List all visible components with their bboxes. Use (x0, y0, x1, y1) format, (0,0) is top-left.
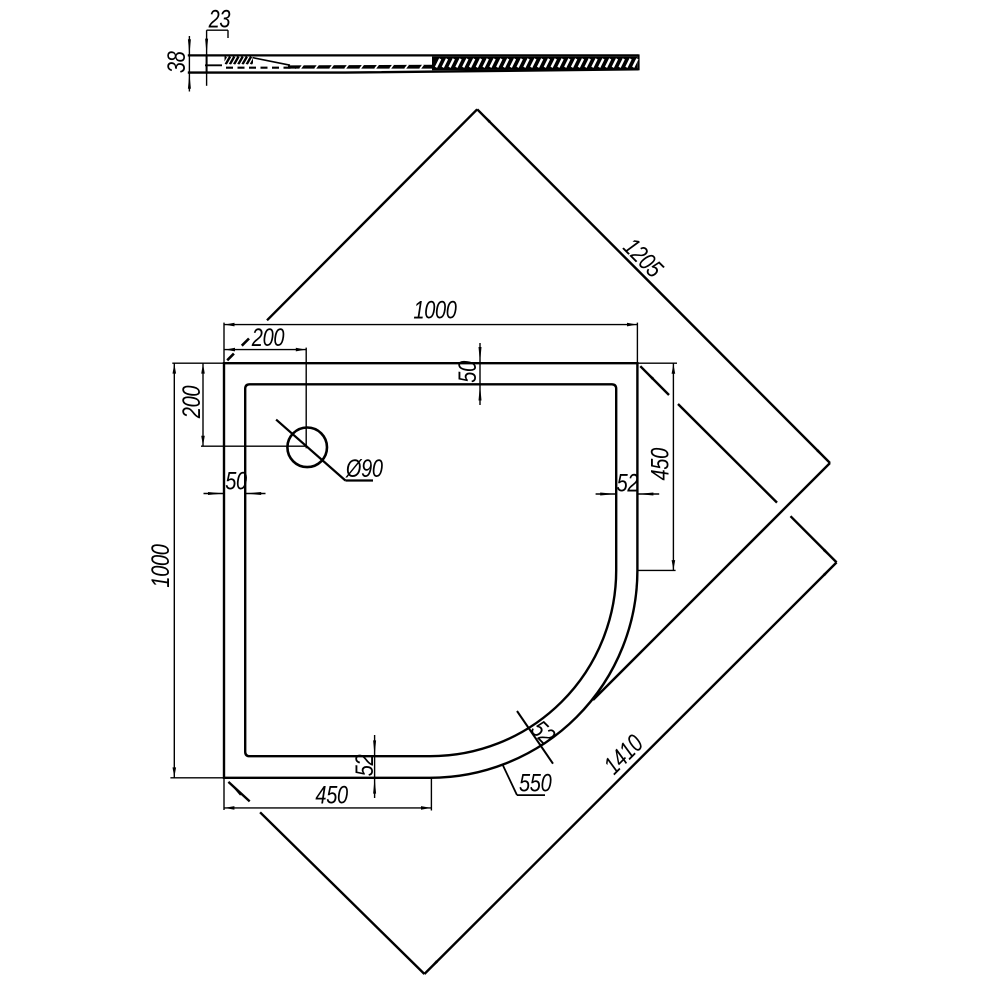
svg-text:550: 550 (519, 769, 552, 797)
svg-text:Ø90: Ø90 (345, 455, 383, 483)
svg-text:50: 50 (454, 360, 482, 382)
svg-text:200: 200 (251, 324, 285, 352)
svg-text:1000: 1000 (413, 297, 457, 325)
svg-text:38: 38 (163, 51, 191, 73)
svg-text:450: 450 (646, 447, 674, 480)
svg-text:200: 200 (178, 385, 206, 419)
svg-text:450: 450 (315, 781, 348, 809)
svg-text:50: 50 (225, 468, 247, 496)
svg-text:52: 52 (351, 754, 379, 776)
svg-text:52: 52 (617, 470, 639, 498)
svg-text:23: 23 (208, 5, 231, 33)
svg-text:1000: 1000 (147, 544, 175, 588)
